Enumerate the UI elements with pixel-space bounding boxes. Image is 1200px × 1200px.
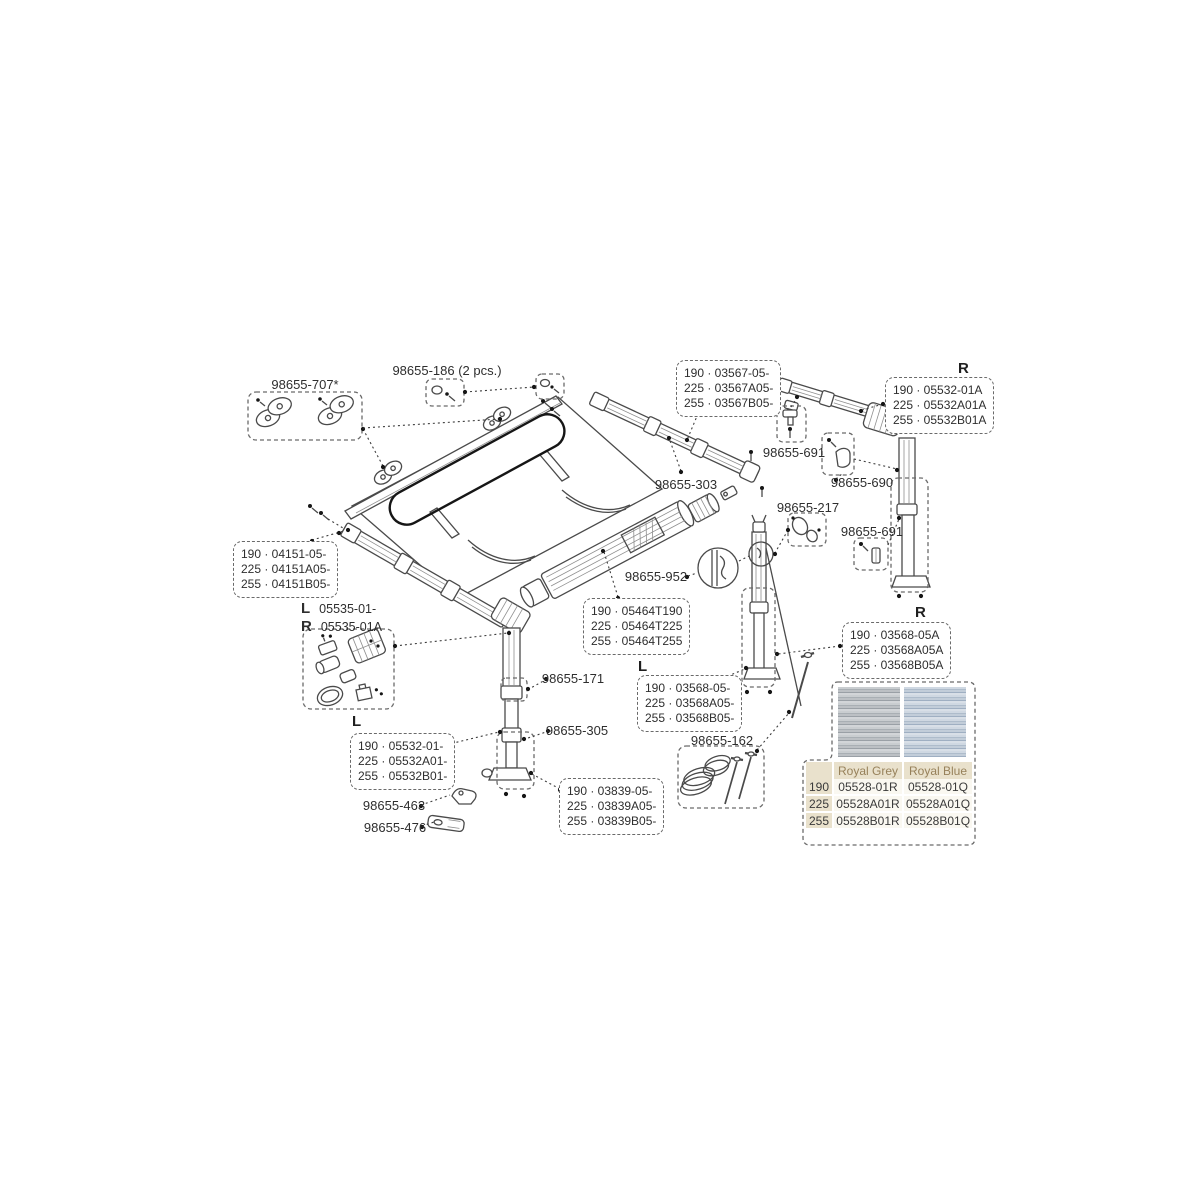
parts-05535 — [315, 628, 387, 709]
parts-707 — [252, 393, 359, 430]
part-label-98655-305: 98655-305 — [546, 723, 608, 738]
table-code-225-blue: 05528A01Q — [904, 796, 972, 811]
code-line: 225 · 03568A05- — [645, 696, 734, 711]
part-label-98655-691-top: 98655-691 — [763, 445, 825, 460]
code-line: 190 · 04151-05- — [241, 547, 330, 562]
parts-691-bottom — [859, 542, 880, 563]
table-size-225: 225 — [806, 796, 832, 811]
part-476 — [427, 815, 464, 832]
right-support-leg — [892, 438, 930, 587]
parts-162 — [676, 752, 757, 804]
parts-186-left — [432, 386, 455, 401]
code-box-05532-right: 190 · 05532-01A 225 · 05532A01A 255 · 05… — [885, 377, 994, 434]
cable-hook-detail — [698, 548, 738, 588]
part-label-98655-690: 98655-690 — [831, 475, 893, 490]
roller-fork-piece — [720, 485, 737, 500]
part-label-98655-476: 98655-476 — [364, 820, 426, 835]
fabric-swatch-royal-blue — [904, 687, 966, 757]
code-line: 190 · 03568-05- — [645, 681, 734, 696]
code-line: 255 · 03567B05- — [684, 396, 773, 411]
table-code-190-blue: 05528-01Q — [904, 779, 972, 794]
code-box-03567: 190 · 03567-05- 225 · 03567A05- 255 · 03… — [676, 360, 781, 417]
code-pair-right: R05535-01A — [301, 618, 382, 636]
part-label-98655-162: 98655-162 — [691, 733, 753, 748]
code-line: 225 · 03839A05- — [567, 799, 656, 814]
code-value: 05535-01- — [319, 602, 376, 616]
part-label-98655-691-bottom: 98655-691 — [841, 524, 903, 539]
side-letter-right: R — [301, 618, 312, 635]
part-label-98655-217: 98655-217 — [777, 500, 839, 515]
code-line: 225 · 03567A05- — [684, 381, 773, 396]
left-support-leg — [482, 628, 531, 780]
code-pair-05535: L05535-01- R05535-01A — [301, 600, 382, 636]
code-line: 255 · 03568B05A — [850, 658, 943, 673]
side-letter-right: R — [915, 604, 926, 621]
code-line: 190 · 05532-01A — [893, 383, 986, 398]
code-line: 225 · 05464T225 — [591, 619, 682, 634]
part-label-98655-463: 98655-463 — [363, 798, 425, 813]
callout-186-left — [426, 379, 464, 406]
part-label-98655-707: 98655-707* — [271, 377, 338, 392]
code-line: 255 · 03839B05- — [567, 814, 656, 829]
parts-217 — [789, 515, 820, 544]
code-box-03568-left: 190 · 03568-05- 225 · 03568A05- 255 · 03… — [637, 675, 742, 732]
code-pair-left: L05535-01- — [301, 600, 382, 618]
side-letter-left: L — [301, 600, 310, 617]
code-box-05532-left: 190 · 05532-01- 225 · 05532A01- 255 · 05… — [350, 733, 455, 790]
side-letter-right: R — [958, 360, 969, 377]
code-box-04151: 190 · 04151-05- 225 · 04151A05- 255 · 04… — [233, 541, 338, 598]
code-line: 255 · 05532B01A — [893, 413, 986, 428]
side-letter-left: L — [638, 658, 647, 675]
table-code-255-blue: 05528B01Q — [904, 813, 972, 828]
table-size-255: 255 — [806, 813, 832, 828]
table-code-190-grey: 05528-01R — [834, 779, 902, 794]
table-size-190: 190 — [806, 779, 832, 794]
callout-691-bottom — [854, 538, 888, 570]
left-arm-screws — [308, 504, 329, 520]
code-line: 190 · 03568-05A — [850, 628, 943, 643]
parts-691-top — [783, 410, 797, 438]
tension-rod — [766, 548, 801, 706]
code-line: 190 · 05464T190 — [591, 604, 682, 619]
code-line: 255 · 05464T255 — [591, 634, 682, 649]
part-463 — [452, 789, 476, 804]
side-letter-left: L — [352, 713, 361, 730]
table-header-blank — [806, 762, 832, 779]
parts-186-right — [541, 380, 560, 394]
fabric-swatch-royal-grey — [838, 687, 900, 757]
code-box-03839: 190 · 03839-05- 225 · 03839A05- 255 · 03… — [559, 778, 664, 835]
code-line: 190 · 03567-05- — [684, 366, 773, 381]
code-box-05464: 190 · 05464T190 225 · 05464T225 255 · 05… — [583, 598, 690, 655]
code-line: 255 · 04151B05- — [241, 577, 330, 592]
table-header-royal-blue: Royal Blue — [904, 762, 972, 779]
code-box-03568-right: 190 · 03568-05A 225 · 03568A05A 255 · 03… — [842, 622, 951, 679]
table-code-225-grey: 05528A01R — [834, 796, 902, 811]
code-line: 225 · 05532A01- — [358, 754, 447, 769]
code-value: 05535-01A — [321, 620, 382, 634]
part-label-98655-186: 98655-186 (2 pcs.) — [392, 363, 501, 378]
part-label-98655-171: 98655-171 — [542, 671, 604, 686]
code-line: 225 · 05532A01A — [893, 398, 986, 413]
code-line: 190 · 05532-01- — [358, 739, 447, 754]
part-label-98655-952: 98655-952 — [625, 569, 687, 584]
code-line: 225 · 03568A05A — [850, 643, 943, 658]
table-code-255-grey: 05528B01R — [834, 813, 902, 828]
code-line: 225 · 04151A05- — [241, 562, 330, 577]
ground-pole — [792, 653, 814, 719]
code-line: 190 · 03839-05- — [567, 784, 656, 799]
awning-parts-diagram: 98655-707* 98655-186 (2 pcs.) 98655-303 … — [0, 0, 1200, 1200]
code-line: 255 · 05532B01- — [358, 769, 447, 784]
table-header-royal-grey: Royal Grey — [834, 762, 902, 779]
fabric-color-table: Royal Grey Royal Blue 190 05528-01R 0552… — [806, 762, 972, 828]
callout-186-right — [536, 374, 564, 399]
parts-690 — [827, 438, 850, 467]
part-label-98655-303: 98655-303 — [655, 477, 717, 492]
code-line: 255 · 03568B05- — [645, 711, 734, 726]
